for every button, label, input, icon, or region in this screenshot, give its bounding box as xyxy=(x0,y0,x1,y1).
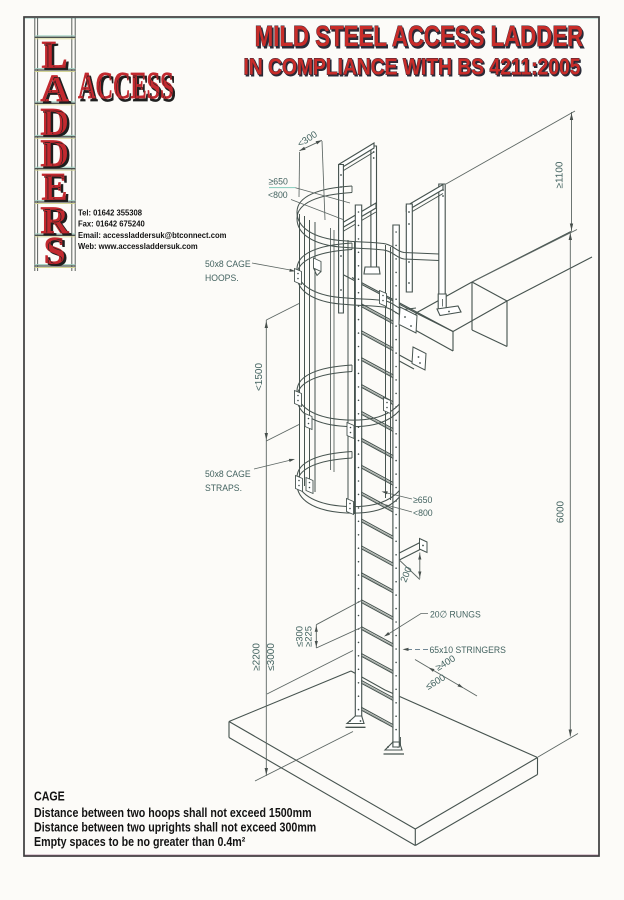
svg-text:ACCESS: ACCESS xyxy=(78,63,174,106)
svg-text:50x8 CAGE: 50x8 CAGE xyxy=(205,469,251,479)
svg-text:≥2200: ≥2200 xyxy=(252,643,263,671)
svg-text:<800: <800 xyxy=(268,190,288,200)
svg-text:≥650: ≥650 xyxy=(413,495,432,505)
svg-text:MILD STEEL ACCESS LADDER: MILD STEEL ACCESS LADDER xyxy=(255,21,583,52)
svg-text:STRAPS.: STRAPS. xyxy=(205,483,242,493)
svg-text:≤3000: ≤3000 xyxy=(266,643,277,671)
svg-text:Distance between two hoops sha: Distance between two hoops shall not exc… xyxy=(34,805,312,820)
svg-text:≥650: ≥650 xyxy=(269,176,288,186)
svg-text:≥225: ≥225 xyxy=(304,626,315,647)
svg-text:Distance between two uprights: Distance between two uprights shall not … xyxy=(34,819,316,834)
svg-text:Fax: 01642 675240: Fax: 01642 675240 xyxy=(78,219,145,229)
svg-text:Empty spaces to be no greater: Empty spaces to be no greater than 0.4m² xyxy=(34,834,245,849)
svg-text:20∅ RUNGS: 20∅ RUNGS xyxy=(430,609,481,619)
svg-text:HOOPS.: HOOPS. xyxy=(205,273,239,283)
svg-text:IN COMPLIANCE WITH BS 4211:200: IN COMPLIANCE WITH BS 4211:2005 xyxy=(244,54,581,80)
svg-text:65x10 STRINGERS: 65x10 STRINGERS xyxy=(430,645,506,655)
svg-text:S: S xyxy=(44,230,66,273)
svg-text:≥1100: ≥1100 xyxy=(555,161,566,188)
svg-text:Tel: 01642 355308: Tel: 01642 355308 xyxy=(78,208,142,218)
svg-text:CAGE: CAGE xyxy=(34,788,65,803)
svg-text:6000: 6000 xyxy=(556,500,567,523)
svg-text:Email: accessladdersuk@btconne: Email: accessladdersuk@btconnect.com xyxy=(78,231,226,241)
svg-text:Web: www.accessladdersuk.com: Web: www.accessladdersuk.com xyxy=(78,242,198,252)
svg-text:<800: <800 xyxy=(413,508,433,518)
svg-text:50x8 CAGE: 50x8 CAGE xyxy=(205,259,251,269)
svg-text:<1500: <1500 xyxy=(254,363,265,392)
